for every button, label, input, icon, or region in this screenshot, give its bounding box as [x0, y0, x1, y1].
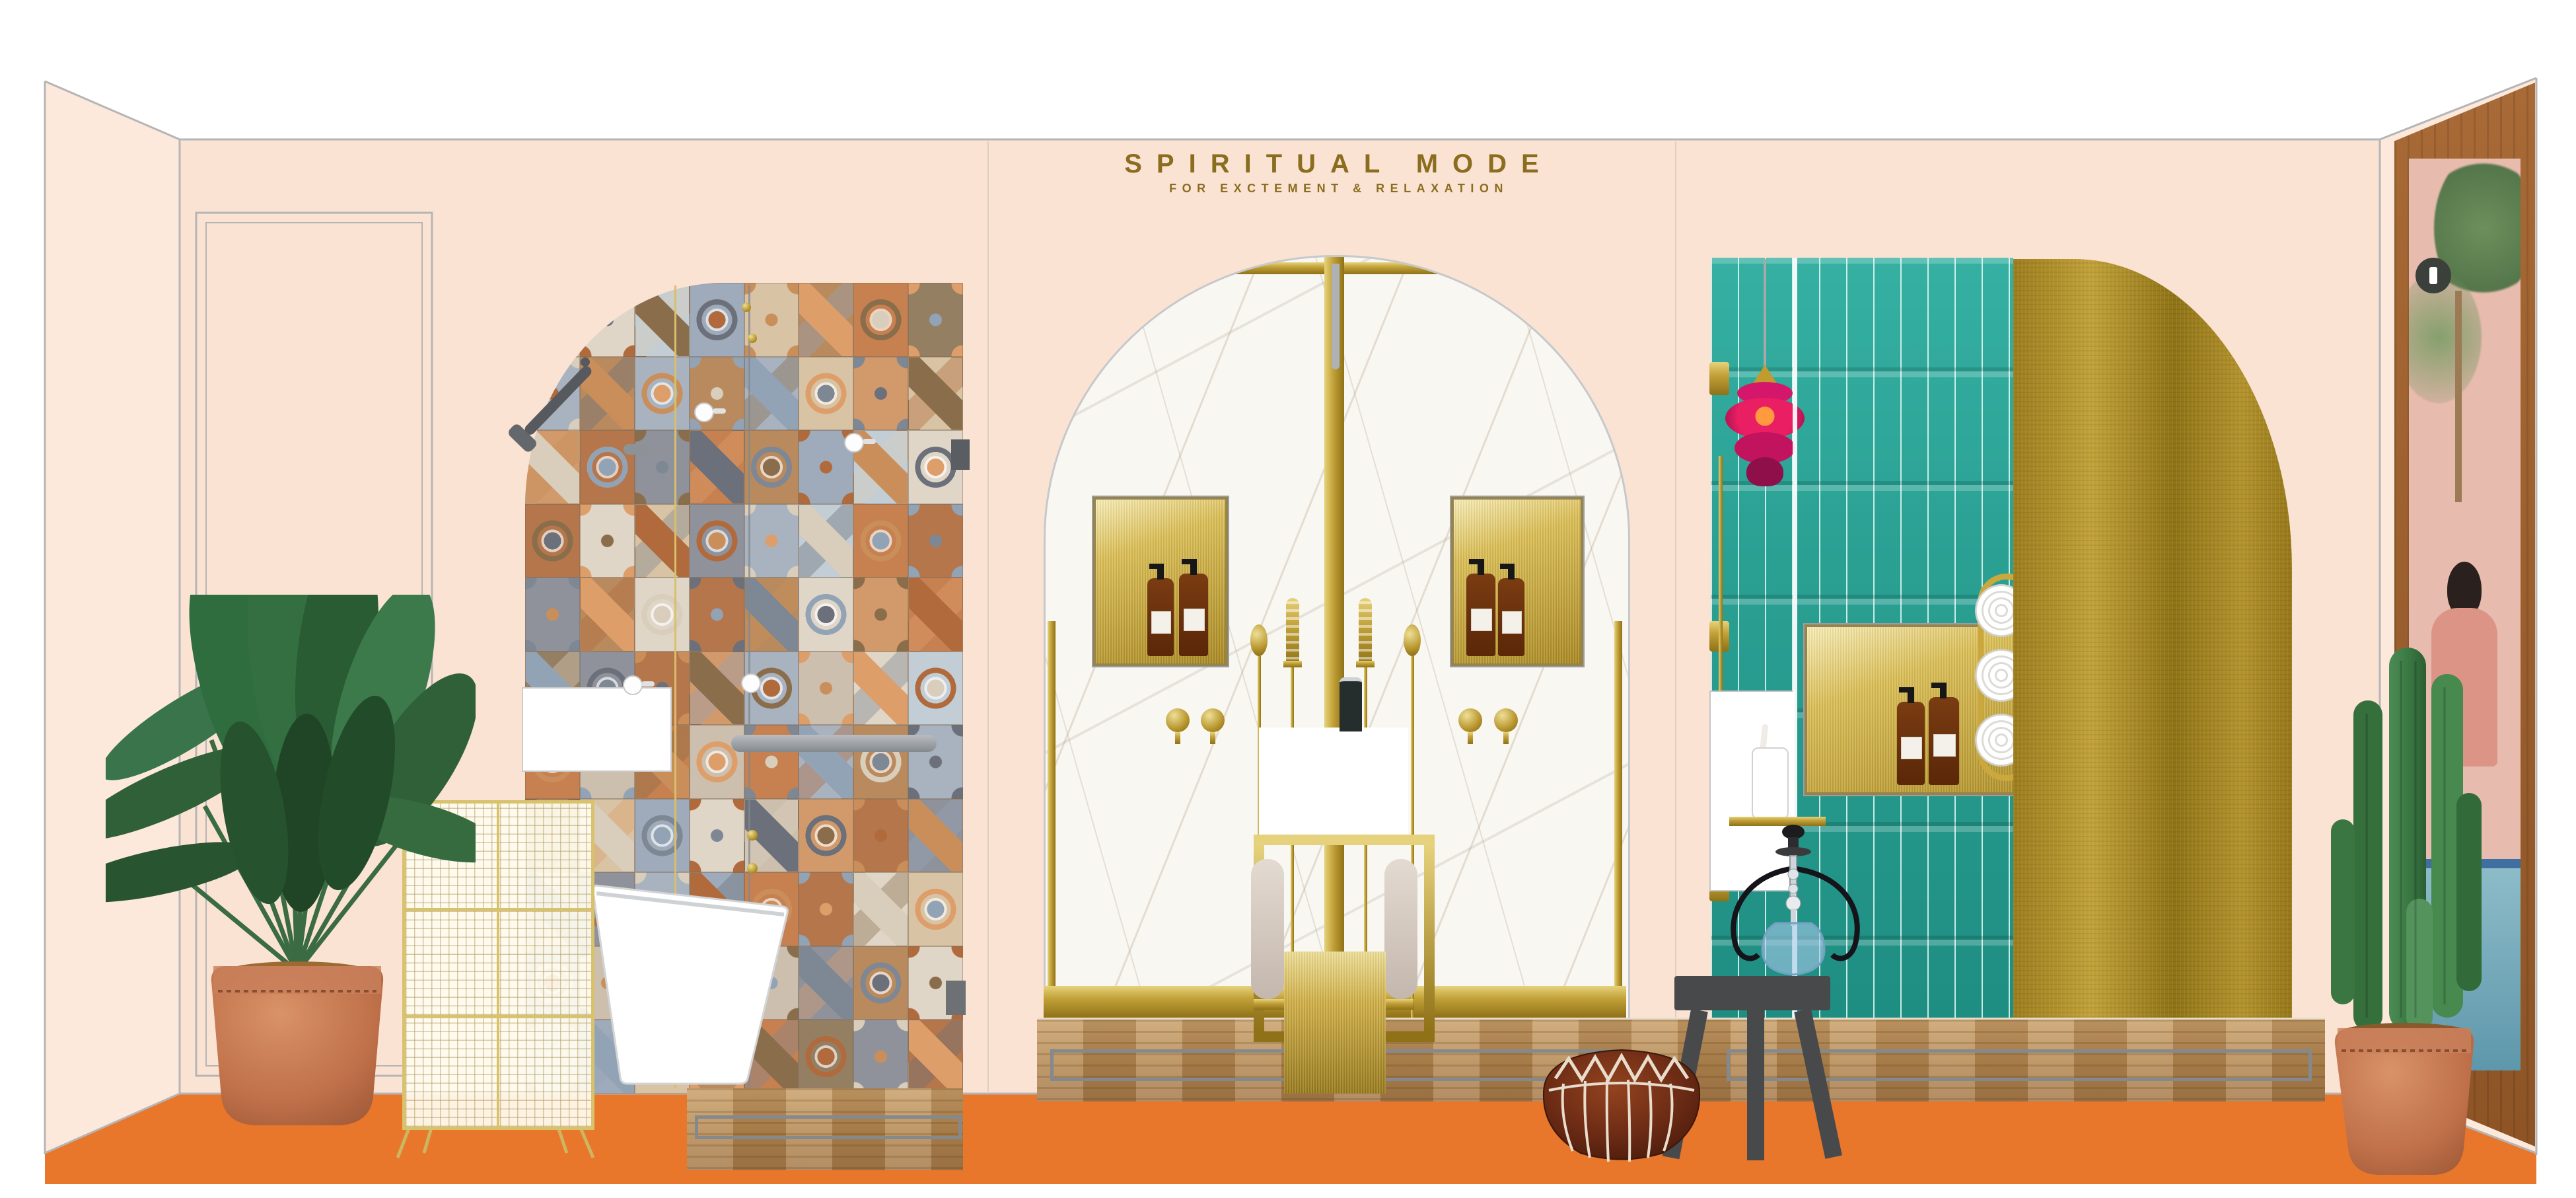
- moroccan-tile: [853, 1020, 908, 1094]
- gold-hook: [748, 334, 757, 343]
- valve-stem: [1210, 732, 1215, 744]
- logo-badge: [2415, 258, 2451, 293]
- moroccan-tile: [744, 283, 799, 357]
- cup: [1752, 747, 1789, 819]
- sink-basin: [1259, 728, 1408, 837]
- moroccan-tile: [853, 283, 908, 357]
- wand-bracket: [1356, 661, 1375, 667]
- cage-center-post: [497, 804, 499, 1127]
- board-title: SPIRITUAL MODE: [1009, 151, 1669, 177]
- left-platform: [687, 1088, 963, 1170]
- soap-bottle: [1466, 574, 1495, 656]
- moroccan-tile: [635, 504, 690, 578]
- gold-valve: [1201, 708, 1225, 732]
- pendant-cord: [1764, 259, 1766, 370]
- pendant-lamp-tip: [1746, 457, 1783, 486]
- moroccan-tile: [690, 430, 744, 504]
- moroccan-tile: [799, 799, 853, 873]
- dark-bottle: [1340, 677, 1362, 731]
- gold-hook: [742, 303, 751, 312]
- strelitzia-plant: [106, 595, 476, 1193]
- moroccan-tile: [853, 799, 908, 873]
- stool-seat: [1674, 976, 1830, 1010]
- moroccan-tile: [908, 357, 963, 431]
- cactus-plant: [2315, 621, 2493, 1183]
- moroccan-tile: [908, 504, 963, 578]
- moroccan-tile: [853, 578, 908, 652]
- marble-gold-trim: [1614, 621, 1622, 1018]
- moroccan-tile: [744, 357, 799, 431]
- moroccan-tile: [799, 578, 853, 652]
- shower-knob-stem: [713, 408, 726, 414]
- moroccan-tile: [908, 1020, 963, 1094]
- moroccan-tile: [690, 799, 744, 873]
- moroccan-tile: [580, 504, 635, 578]
- shower-glass-gold-edge: [674, 285, 676, 1088]
- rain-column-slot: [1332, 264, 1340, 369]
- leather-pouf: [1529, 1032, 1714, 1172]
- shower-knob: [623, 675, 643, 695]
- plant-leaves: [106, 595, 476, 915]
- moroccan-tile: [635, 357, 690, 431]
- hand-wand: [1286, 598, 1299, 667]
- moroccan-tile: [799, 283, 853, 357]
- board-title-block: SPIRITUAL MODE FOR EXCTEMENT & RELAXATIO…: [1009, 151, 1669, 196]
- moroccan-tile: [744, 1020, 799, 1094]
- shower-rod-head: [1250, 624, 1268, 656]
- stool-leg: [1747, 1010, 1764, 1160]
- soap-bottle: [1897, 702, 1925, 785]
- moroccan-tile: [525, 578, 580, 652]
- shower-knob: [741, 673, 761, 693]
- gold-valve: [1458, 708, 1482, 732]
- bench-gold-panel: [1284, 952, 1386, 1094]
- valve-stem: [1175, 732, 1180, 744]
- moroccan-tile: [744, 872, 799, 946]
- moroccan-tile: [635, 799, 690, 873]
- moroccan-tile: [799, 357, 853, 431]
- valve-stem: [1503, 732, 1509, 744]
- moroccan-tile: [635, 946, 690, 1020]
- moroccan-tile: [525, 504, 580, 578]
- palm-trunk: [2455, 291, 2462, 502]
- hand-wand: [1359, 598, 1372, 667]
- moroccan-tile: [799, 872, 853, 946]
- small-handle: [624, 444, 650, 455]
- moroccan-tile: [635, 578, 690, 652]
- moroccan-tile: [908, 652, 963, 726]
- soap-bottle: [1179, 574, 1208, 656]
- shower-window: [522, 687, 672, 772]
- moroccan-tile: [908, 799, 963, 873]
- moroccan-tile: [908, 578, 963, 652]
- soap-dish: [946, 981, 966, 1015]
- moroccan-tile: [853, 504, 908, 578]
- gold-hook: [747, 863, 758, 874]
- wand-bracket: [1283, 661, 1302, 667]
- gold-valve: [1494, 708, 1518, 732]
- moroccan-tile: [799, 1020, 853, 1094]
- moroccan-tile: [853, 357, 908, 431]
- moroccan-tile: [799, 504, 853, 578]
- moroccan-tile: [744, 578, 799, 652]
- moroccan-tile: [908, 872, 963, 946]
- hookah: [1711, 823, 1882, 978]
- moroccan-tile: [690, 578, 744, 652]
- rail-endcap: [581, 357, 590, 367]
- moroccan-tile: [690, 1020, 744, 1094]
- moroccan-tile: [635, 872, 690, 946]
- moroccan-tile: [853, 652, 908, 726]
- moroccan-tile: [635, 1020, 690, 1094]
- board-subtitle: FOR EXCTEMENT & RELAXATION: [1009, 182, 1669, 196]
- shower-knob-stem: [863, 439, 876, 444]
- soap-bottle: [1929, 697, 1959, 785]
- moroccan-tile: [690, 504, 744, 578]
- platform-channel: [695, 1115, 962, 1139]
- moroccan-tile: [853, 872, 908, 946]
- moroccan-tile: [744, 504, 799, 578]
- hanging-towel: [1384, 859, 1417, 999]
- hanging-towel: [1251, 859, 1284, 999]
- shower-knob: [844, 433, 864, 453]
- soap-bottle: [1147, 578, 1174, 656]
- valve-stem: [1468, 732, 1473, 744]
- moroccan-tile: [908, 283, 963, 357]
- marble-gold-trim: [1048, 621, 1055, 1018]
- moroccan-tile: [799, 946, 853, 1020]
- moroccan-tile: [635, 430, 690, 504]
- soap-bottle: [1498, 578, 1524, 656]
- grab-bar: [731, 735, 937, 752]
- moroccan-tile: [799, 652, 853, 726]
- moroccan-tile: [690, 946, 744, 1020]
- logo-glyph: [2429, 267, 2437, 284]
- moroccan-tile: [744, 946, 799, 1020]
- moroccan-tile: [744, 430, 799, 504]
- moroccan-tile: [580, 578, 635, 652]
- moroccan-tile: [690, 283, 744, 357]
- gold-valve: [1166, 708, 1190, 732]
- cactus-lobes: [2331, 648, 2482, 1031]
- moroccan-tile: [690, 652, 744, 726]
- moroccan-tile: [853, 946, 908, 1020]
- shower-knob-stem: [641, 681, 655, 687]
- design-board: SPIRITUAL MODE FOR EXCTEMENT & RELAXATIO…: [0, 0, 2576, 1198]
- moroccan-tile: [690, 872, 744, 946]
- moroccan-tile: [580, 430, 635, 504]
- soap-dish: [951, 439, 970, 470]
- gold-hook: [747, 830, 758, 841]
- shower-rod-head: [1404, 624, 1421, 656]
- shower-knob: [694, 402, 714, 422]
- gold-hook: [1709, 362, 1729, 395]
